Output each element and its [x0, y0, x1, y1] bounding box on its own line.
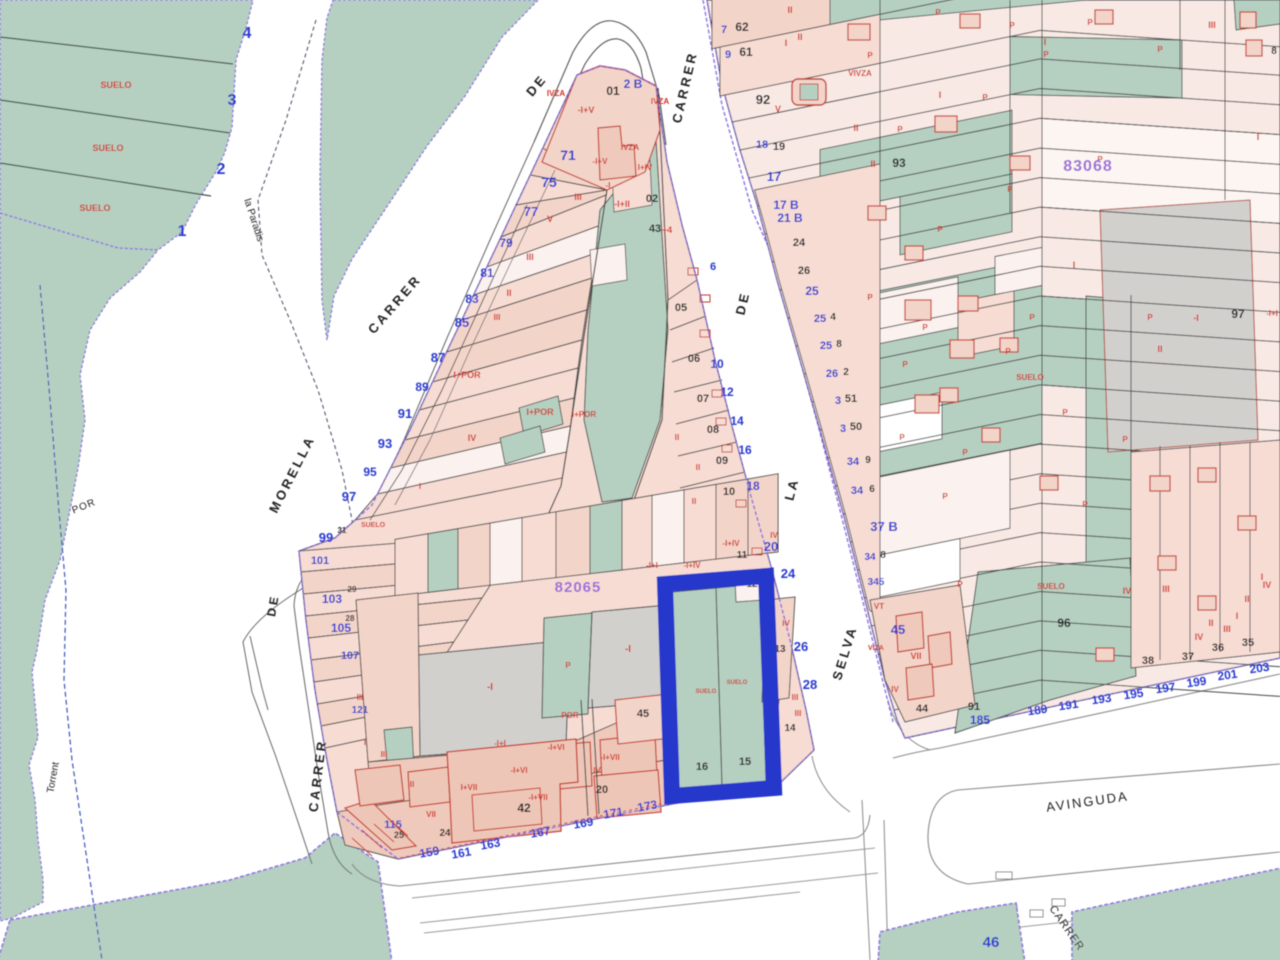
svg-text:P: P — [1087, 18, 1093, 27]
svg-text:II: II — [675, 433, 679, 442]
svg-text:3: 3 — [228, 92, 237, 109]
svg-text:21 B: 21 B — [777, 211, 803, 225]
svg-text:SUELO: SUELO — [696, 689, 717, 695]
svg-text:P: P — [1062, 408, 1068, 417]
svg-text:9: 9 — [865, 455, 871, 466]
svg-text:91: 91 — [398, 406, 412, 421]
svg-text:III: III — [795, 709, 802, 718]
svg-text:III: III — [574, 192, 582, 202]
svg-text:10: 10 — [723, 486, 735, 498]
svg-text:III: III — [357, 693, 364, 702]
svg-text:P: P — [1043, 50, 1049, 59]
svg-text:3: 3 — [835, 395, 841, 407]
svg-text:P: P — [565, 661, 571, 670]
svg-text:IV: IV — [468, 433, 477, 443]
svg-text:34: 34 — [864, 552, 876, 563]
svg-text:P: P — [899, 433, 905, 442]
svg-text:91: 91 — [968, 701, 980, 713]
svg-text:P: P — [982, 93, 988, 102]
svg-text:-I: -I — [487, 682, 493, 693]
svg-text:I: I — [1257, 132, 1260, 142]
svg-text:II: II — [797, 32, 802, 42]
svg-text:P: P — [962, 448, 968, 457]
svg-text:97: 97 — [1231, 307, 1245, 321]
svg-text:-I+VI: -I+VI — [547, 743, 564, 752]
svg-text:P: P — [937, 225, 943, 234]
svg-text:III: III — [494, 313, 501, 322]
svg-text:SUELO: SUELO — [92, 143, 123, 153]
svg-text:-I: -I — [625, 644, 631, 655]
svg-text:50: 50 — [850, 421, 862, 433]
svg-text:P: P — [922, 323, 928, 332]
svg-text:105: 105 — [331, 621, 351, 635]
svg-text:20: 20 — [596, 784, 608, 796]
svg-text:7: 7 — [721, 24, 727, 36]
svg-text:P: P — [897, 125, 903, 134]
svg-text:IV: IV — [770, 531, 778, 540]
svg-text:75: 75 — [541, 174, 557, 190]
svg-text:SUELO: SUELO — [361, 522, 386, 529]
svg-text:I: I — [364, 738, 366, 747]
svg-text:-I+I: -I+I — [646, 561, 658, 570]
svg-text:II: II — [787, 5, 792, 15]
svg-text:37 B: 37 B — [870, 519, 897, 534]
svg-text:2: 2 — [217, 161, 226, 178]
svg-text:16: 16 — [696, 761, 708, 773]
svg-text:9: 9 — [725, 49, 731, 61]
svg-text:37: 37 — [1182, 651, 1194, 663]
svg-text:93: 93 — [378, 436, 392, 451]
svg-text:51: 51 — [845, 393, 857, 405]
svg-text:P: P — [1157, 45, 1163, 54]
svg-text:P: P — [1009, 21, 1015, 30]
svg-text:SUELO: SUELO — [1037, 582, 1065, 591]
svg-text:97: 97 — [342, 489, 356, 504]
svg-text:4: 4 — [243, 25, 252, 42]
svg-text:P: P — [867, 293, 873, 302]
svg-text:I: I — [1044, 37, 1047, 47]
svg-text:P: P — [1029, 313, 1035, 322]
svg-text:-I+II: -I+II — [614, 199, 630, 209]
svg-text:SUELO: SUELO — [727, 680, 748, 686]
svg-text:2 B: 2 B — [624, 77, 643, 91]
svg-text:-I+I: -I+I — [1266, 309, 1278, 318]
svg-text:25: 25 — [814, 313, 826, 325]
svg-text:89: 89 — [415, 380, 429, 394]
svg-text:IV: IV — [891, 685, 899, 694]
svg-text:193: 193 — [1091, 691, 1113, 708]
svg-text:II: II — [1157, 344, 1162, 354]
svg-text:87: 87 — [431, 350, 445, 365]
svg-text:12: 12 — [720, 385, 734, 399]
svg-text:IVZA: IVZA — [651, 97, 669, 106]
svg-text:11: 11 — [737, 550, 748, 561]
svg-text:-I+IV: -I+IV — [683, 561, 701, 570]
svg-text:24: 24 — [781, 566, 796, 581]
svg-text:3: 3 — [840, 423, 846, 435]
svg-text:199: 199 — [1186, 674, 1208, 691]
svg-text:36: 36 — [1212, 642, 1224, 654]
svg-text:P: P — [942, 492, 948, 501]
svg-text:VT: VT — [874, 602, 884, 611]
svg-text:P: P — [1122, 435, 1128, 444]
svg-text:6: 6 — [869, 484, 875, 495]
svg-text:P: P — [1005, 347, 1011, 356]
svg-text:201: 201 — [1217, 667, 1239, 684]
svg-text:15: 15 — [739, 756, 751, 768]
svg-text:IV: IV — [782, 619, 790, 628]
svg-text:77: 77 — [524, 204, 538, 219]
svg-text:II: II — [870, 159, 875, 169]
svg-text:01: 01 — [606, 84, 620, 98]
svg-text:II: II — [1208, 618, 1213, 628]
svg-text:185: 185 — [970, 713, 990, 727]
svg-text:8: 8 — [836, 339, 842, 350]
svg-text:II: II — [853, 123, 858, 133]
svg-text:P: P — [1007, 185, 1013, 194]
svg-text:93: 93 — [892, 156, 906, 170]
svg-text:II: II — [410, 780, 414, 789]
svg-text:85: 85 — [455, 315, 469, 330]
svg-text:-I+VII: -I+VII — [600, 753, 619, 762]
svg-text:99: 99 — [319, 530, 333, 545]
svg-text:18: 18 — [746, 479, 760, 493]
svg-text:17 B: 17 B — [773, 198, 799, 212]
svg-text:P: P — [957, 580, 963, 589]
svg-text:III: III — [1223, 624, 1231, 634]
svg-text:P: P — [902, 360, 908, 369]
svg-text:79: 79 — [499, 236, 513, 250]
svg-text:-I: -I — [606, 181, 611, 190]
svg-text:25: 25 — [820, 340, 832, 352]
svg-text:45: 45 — [637, 708, 649, 720]
svg-text:SUELO: SUELO — [1016, 373, 1044, 382]
svg-text:III: III — [1162, 584, 1170, 594]
svg-text:09: 09 — [716, 455, 728, 467]
svg-text:P: P — [867, 51, 873, 60]
svg-text:07: 07 — [697, 393, 709, 405]
svg-text:IV: IV — [1263, 580, 1272, 590]
svg-text:197: 197 — [1155, 680, 1177, 697]
svg-text:38: 38 — [1142, 655, 1154, 667]
svg-text:24: 24 — [439, 828, 451, 839]
svg-text:82065: 82065 — [555, 579, 602, 596]
svg-text:II: II — [696, 463, 700, 472]
svg-text:I: I — [785, 38, 788, 48]
svg-text:345: 345 — [868, 577, 885, 588]
svg-text:-I+V: -I+V — [593, 157, 609, 166]
svg-text:103: 103 — [322, 592, 342, 606]
svg-text:V: V — [775, 104, 781, 114]
svg-text:III: III — [526, 252, 534, 262]
svg-text:-I+V: -I+V — [578, 105, 595, 115]
svg-text:62: 62 — [735, 20, 749, 34]
svg-text:191: 191 — [1058, 697, 1080, 714]
svg-text:IVZA: IVZA — [621, 143, 639, 152]
svg-text:28: 28 — [346, 614, 355, 623]
svg-text:I+POR: I+POR — [453, 370, 481, 380]
svg-text:05: 05 — [675, 302, 687, 314]
svg-text:10: 10 — [710, 357, 724, 371]
svg-text:2: 2 — [843, 367, 849, 378]
svg-text:81: 81 — [480, 266, 494, 280]
svg-text:83: 83 — [465, 292, 479, 306]
svg-text:34: 34 — [847, 456, 860, 468]
svg-text:-I+VII: -I+VII — [528, 793, 547, 802]
svg-text:IV: IV — [1195, 632, 1204, 642]
svg-text:96: 96 — [1057, 616, 1071, 630]
svg-text:I+POR: I+POR — [526, 407, 554, 417]
svg-text:61: 61 — [739, 45, 753, 59]
svg-text:IV: IV — [593, 766, 601, 775]
svg-text:I: I — [419, 482, 421, 491]
svg-text:16: 16 — [738, 443, 752, 457]
svg-text:I: I — [939, 90, 942, 100]
svg-text:26: 26 — [798, 265, 810, 277]
svg-text:II: II — [692, 497, 696, 506]
svg-text:107: 107 — [341, 650, 359, 662]
svg-text:14: 14 — [730, 414, 744, 428]
svg-text:24: 24 — [793, 237, 806, 249]
svg-text:14: 14 — [784, 723, 796, 734]
svg-text:34: 34 — [851, 485, 864, 497]
svg-text:4: 4 — [830, 312, 836, 323]
svg-text:95: 95 — [363, 465, 377, 479]
svg-text:III: III — [792, 693, 799, 702]
svg-text:8: 8 — [880, 550, 886, 561]
svg-text:19: 19 — [773, 141, 785, 153]
svg-text:26: 26 — [794, 639, 808, 654]
svg-text:6: 6 — [710, 261, 716, 273]
svg-text:III: III — [1208, 20, 1216, 30]
svg-text:-I+VI: -I+VI — [510, 766, 527, 775]
svg-text:43: 43 — [649, 223, 661, 235]
svg-text:42: 42 — [517, 801, 531, 815]
svg-text:-I+IV: -I+IV — [722, 539, 740, 548]
svg-text:POR: POR — [561, 711, 579, 720]
svg-text:20: 20 — [764, 539, 778, 554]
svg-text:SUELO: SUELO — [100, 80, 131, 90]
svg-text:II: II — [1244, 594, 1249, 604]
svg-text:VII: VII — [910, 651, 921, 661]
svg-text:III: III — [381, 750, 388, 759]
svg-text:P: P — [935, 8, 941, 17]
svg-text:45: 45 — [891, 622, 905, 637]
svg-text:I+POR: I+POR — [572, 410, 596, 419]
svg-text:121: 121 — [352, 705, 369, 716]
svg-text:I+IV: I+IV — [638, 163, 653, 172]
svg-text:02: 02 — [646, 193, 658, 205]
svg-text:44: 44 — [916, 703, 929, 715]
svg-text:V: V — [547, 214, 553, 224]
svg-text:46: 46 — [983, 934, 1000, 951]
svg-text:IV: IV — [1123, 586, 1132, 596]
svg-text:VII: VII — [426, 810, 436, 819]
svg-text:-I: -I — [1193, 313, 1199, 323]
svg-text:I: I — [1073, 260, 1076, 270]
svg-text:29: 29 — [348, 585, 357, 594]
svg-text:101: 101 — [311, 555, 329, 567]
svg-text:83068: 83068 — [1063, 158, 1113, 175]
svg-text:25: 25 — [805, 284, 819, 298]
svg-text:35: 35 — [1242, 637, 1254, 649]
svg-text:26: 26 — [826, 368, 838, 380]
svg-text:203: 203 — [1249, 660, 1271, 677]
svg-text:I: I — [1236, 611, 1239, 621]
svg-text:-I+I: -I+I — [494, 739, 506, 748]
svg-text:VIZA: VIZA — [868, 645, 884, 652]
svg-text:06: 06 — [688, 353, 700, 365]
svg-text:71: 71 — [560, 147, 576, 163]
svg-text:II: II — [506, 288, 511, 298]
svg-text:SUELO: SUELO — [79, 203, 110, 213]
svg-text:P: P — [1082, 500, 1088, 509]
svg-text:17: 17 — [767, 169, 781, 184]
svg-text:P: P — [1147, 313, 1153, 322]
svg-text:1: 1 — [178, 223, 187, 240]
svg-text:8: 8 — [1271, 46, 1277, 57]
svg-text:189: 189 — [1027, 702, 1049, 719]
svg-text:+4: +4 — [662, 225, 672, 235]
svg-text:28: 28 — [803, 677, 817, 692]
svg-text:VIVZA: VIVZA — [848, 69, 872, 78]
svg-text:IVZA: IVZA — [547, 89, 565, 98]
svg-text:92: 92 — [756, 92, 770, 107]
svg-text:08: 08 — [707, 424, 719, 436]
svg-text:195: 195 — [1123, 686, 1145, 703]
svg-text:I+VII: I+VII — [461, 783, 478, 792]
svg-text:18: 18 — [756, 139, 768, 151]
svg-text:31: 31 — [338, 526, 347, 535]
